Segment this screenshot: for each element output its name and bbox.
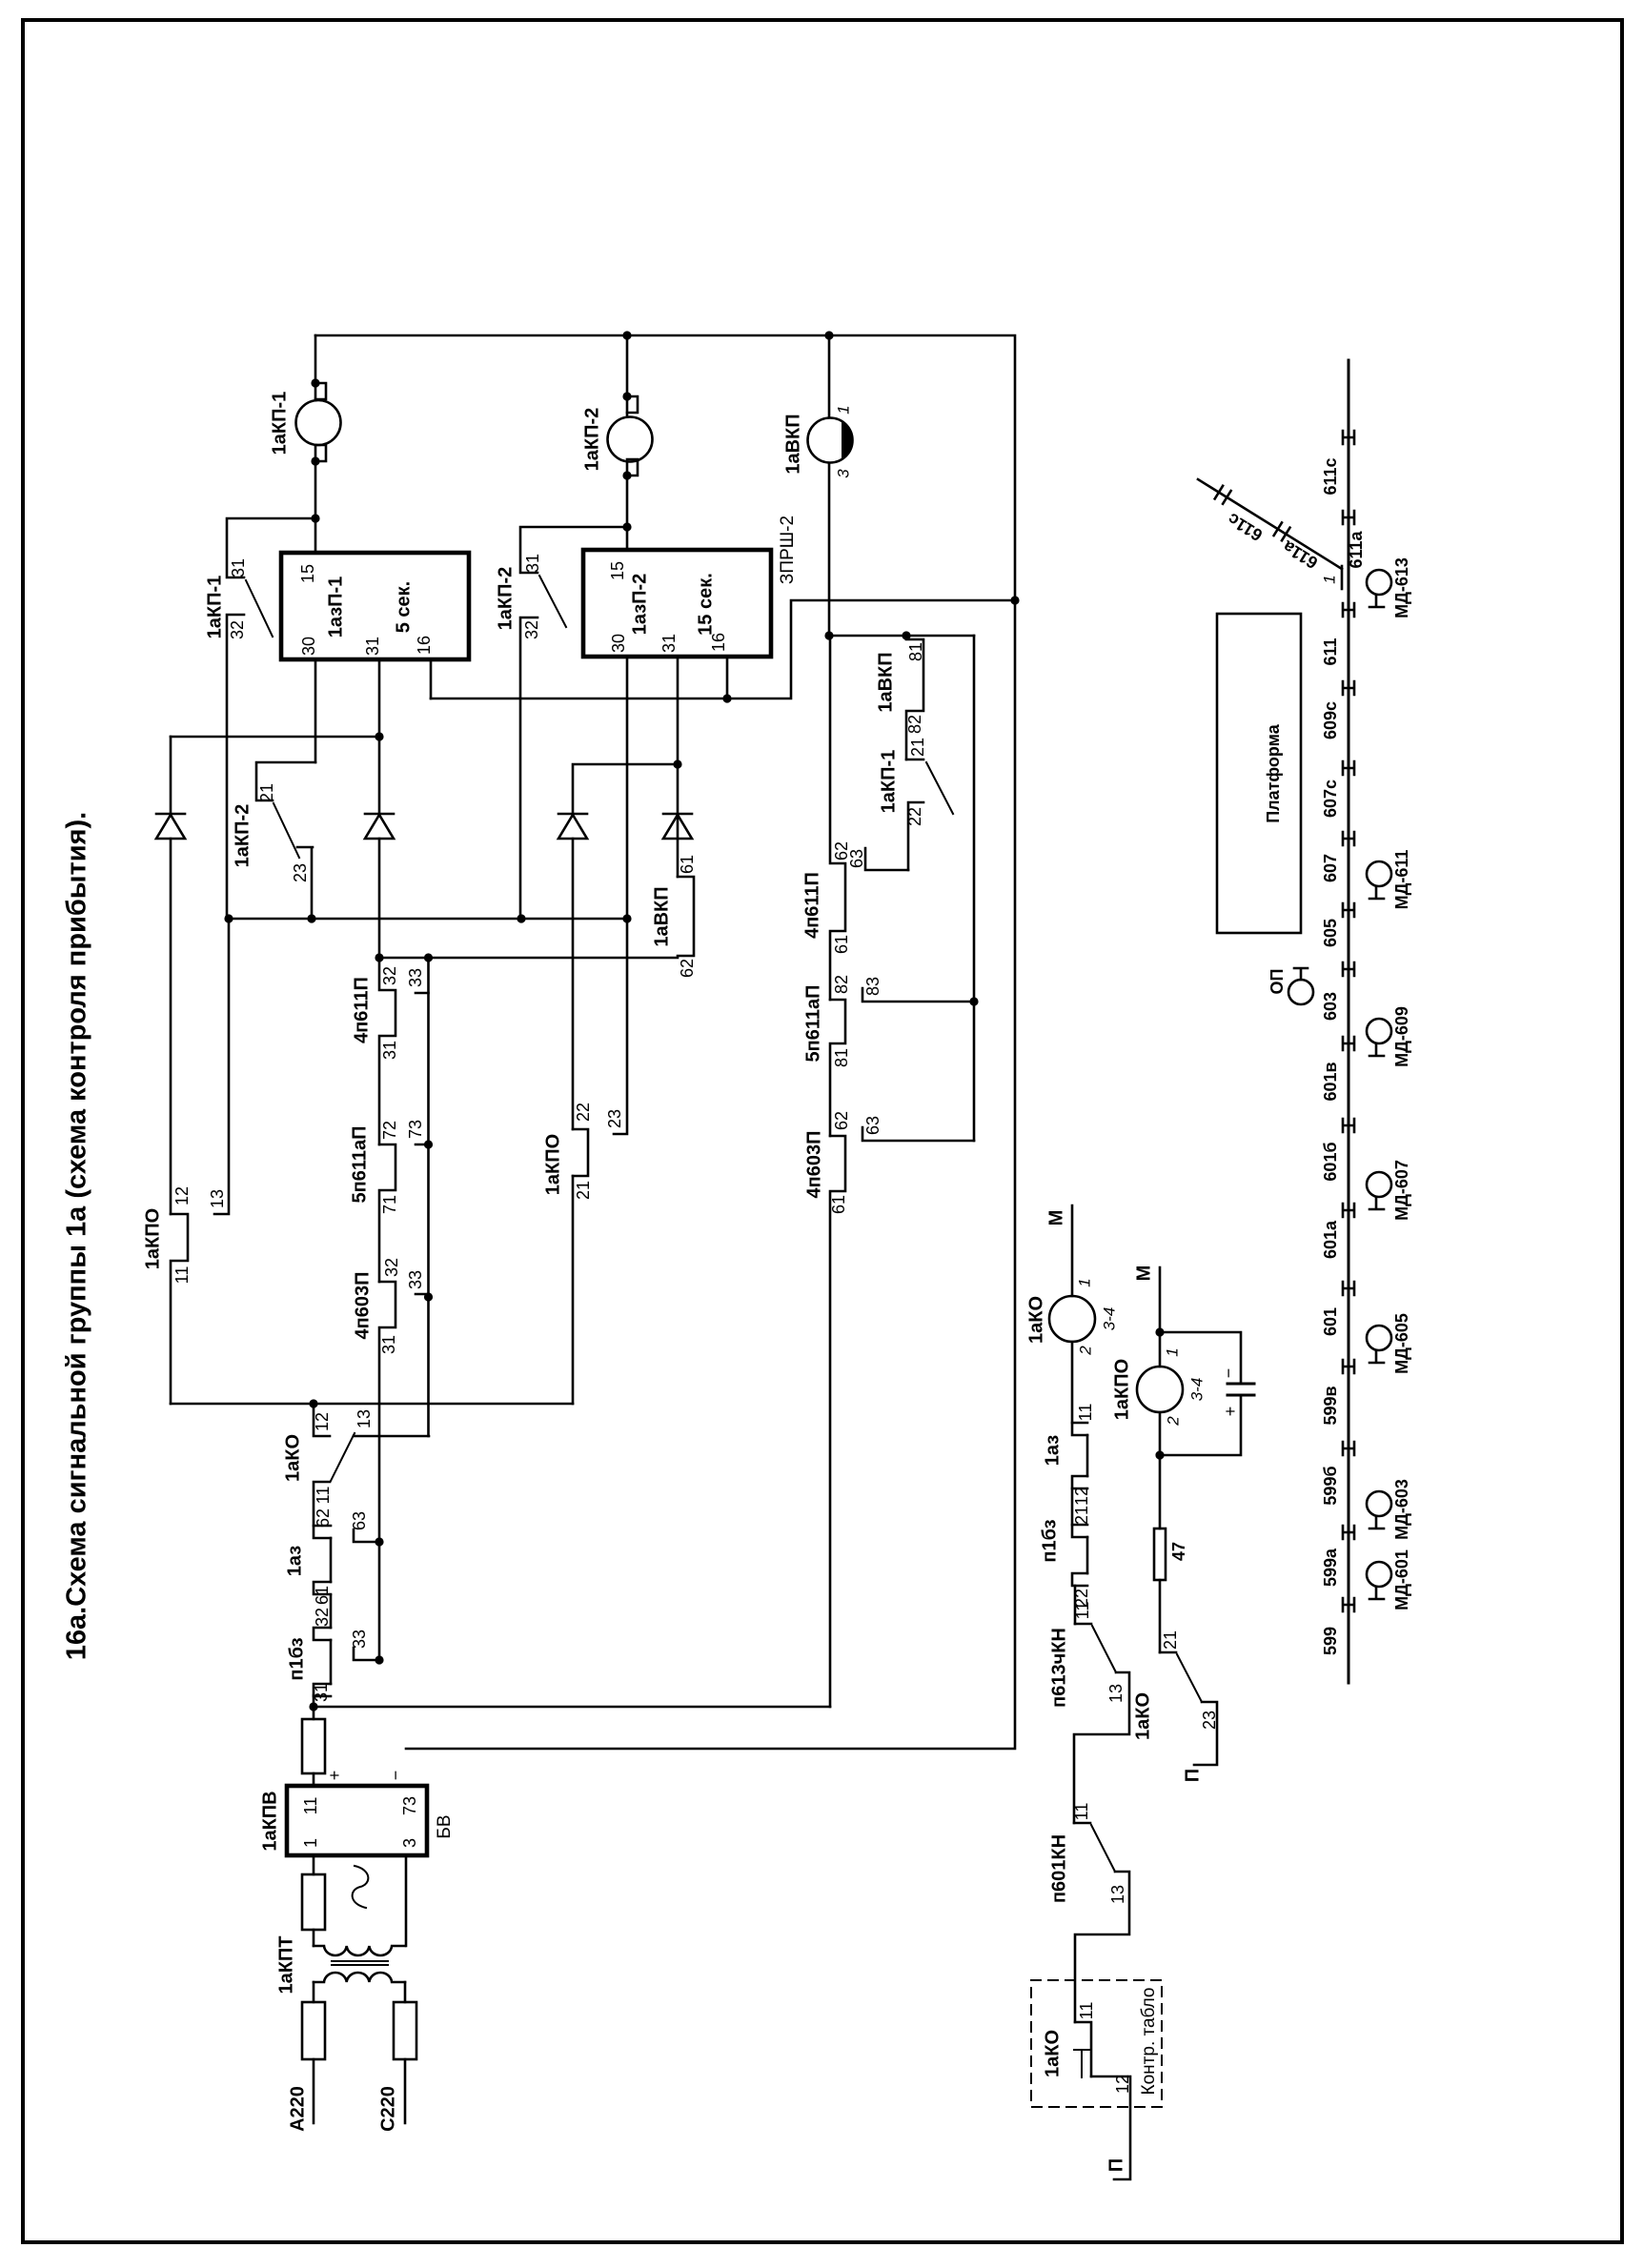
svg-text:31: 31 (312, 1683, 331, 1702)
svg-text:15: 15 (298, 564, 317, 583)
svg-text:1аКПТ: 1аКПТ (275, 1935, 296, 1994)
svg-text:32: 32 (382, 1258, 401, 1277)
svg-text:32: 32 (380, 966, 399, 985)
svg-text:МД-603: МД-603 (1392, 1479, 1411, 1540)
svg-text:61: 61 (313, 1586, 332, 1605)
svg-text:32: 32 (228, 620, 247, 639)
svg-text:62: 62 (678, 959, 697, 978)
svg-text:11: 11 (301, 1797, 320, 1815)
svg-text:82: 82 (905, 715, 924, 734)
svg-text:609с: 609с (1321, 701, 1340, 739)
svg-text:11: 11 (1072, 1803, 1091, 1821)
svg-text:607с: 607с (1321, 780, 1340, 818)
svg-text:п1бз: п1бз (1039, 1519, 1060, 1562)
svg-text:3-4: 3-4 (1187, 1378, 1206, 1402)
svg-text:2: 2 (1076, 1346, 1094, 1356)
svg-text:21: 21 (1161, 1630, 1180, 1650)
svg-text:3-4: 3-4 (1100, 1307, 1118, 1331)
svg-text:1аКО: 1аКО (1132, 1692, 1153, 1740)
svg-text:13: 13 (208, 1189, 227, 1208)
svg-text:ЗПРШ-2: ЗПРШ-2 (778, 516, 798, 584)
svg-text:32: 32 (313, 1608, 332, 1627)
svg-text:2: 2 (1164, 1416, 1182, 1427)
svg-text:611с: 611с (1321, 457, 1340, 495)
svg-text:11: 11 (314, 1487, 333, 1505)
svg-text:63: 63 (847, 849, 866, 868)
svg-text:611: 611 (1321, 638, 1340, 665)
svg-text:599а: 599а (1321, 1548, 1340, 1587)
svg-text:12: 12 (1113, 2075, 1132, 2094)
svg-text:4п603П: 4п603П (803, 1131, 824, 1199)
svg-text:607: 607 (1321, 854, 1340, 882)
svg-text:1: 1 (1163, 1347, 1181, 1356)
svg-text:30: 30 (299, 637, 318, 656)
svg-text:М: М (1133, 1266, 1154, 1282)
svg-text:1аКП-2: 1аКП-2 (581, 408, 602, 472)
svg-text:601а: 601а (1321, 1220, 1340, 1259)
svg-text:1аВКП: 1аВКП (875, 652, 896, 712)
svg-text:1аКО: 1аКО (1042, 2030, 1063, 2077)
svg-text:15 сек.: 15 сек. (695, 573, 716, 636)
svg-text:21: 21 (1072, 1506, 1091, 1525)
svg-text:32: 32 (522, 620, 541, 639)
svg-text:5п611аП: 5п611аП (802, 985, 823, 1063)
svg-text:МД-607: МД-607 (1392, 1160, 1411, 1221)
svg-text:599: 599 (1321, 1627, 1340, 1655)
svg-text:605: 605 (1321, 919, 1340, 947)
svg-text:73: 73 (400, 1796, 419, 1815)
svg-text:1аКП-1: 1аКП-1 (269, 392, 290, 456)
svg-text:23: 23 (291, 863, 310, 882)
svg-text:5п611аП: 5п611аП (349, 1126, 370, 1204)
svg-text:1аз: 1аз (1042, 1435, 1063, 1466)
svg-text:81: 81 (906, 642, 925, 661)
svg-text:А220: А220 (287, 2086, 308, 2132)
svg-text:33: 33 (406, 1270, 425, 1289)
svg-text:16: 16 (415, 636, 434, 655)
svg-text:611а: 611а (1347, 530, 1366, 568)
svg-text:33: 33 (350, 1630, 369, 1649)
svg-text:М: М (1045, 1210, 1066, 1226)
svg-text:−: − (1219, 1368, 1238, 1379)
svg-text:−: − (386, 1771, 405, 1781)
svg-text:п601КН: п601КН (1048, 1834, 1069, 1903)
svg-text:3: 3 (400, 1838, 419, 1848)
svg-text:12: 12 (1072, 1487, 1091, 1506)
svg-text:4п603П: 4п603П (352, 1272, 373, 1340)
svg-text:1: 1 (834, 405, 852, 414)
svg-text:1азП-2: 1азП-2 (629, 574, 650, 636)
svg-text:13: 13 (1108, 1885, 1127, 1904)
svg-text:1аКПО: 1аКПО (142, 1208, 163, 1269)
svg-text:3: 3 (834, 469, 852, 478)
svg-text:33: 33 (406, 968, 425, 987)
svg-text:1аКО: 1аКО (282, 1434, 303, 1482)
svg-text:1: 1 (1075, 1278, 1093, 1286)
svg-text:83: 83 (863, 977, 882, 996)
svg-text:С220: С220 (377, 2086, 398, 2132)
svg-text:МД-613: МД-613 (1392, 557, 1411, 618)
svg-text:ОП: ОП (1268, 969, 1287, 995)
svg-text:5 сек.: 5 сек. (393, 581, 414, 634)
svg-text:71: 71 (380, 1195, 399, 1214)
svg-text:1аКП-1: 1аКП-1 (204, 576, 225, 639)
svg-text:МД-601: МД-601 (1392, 1549, 1411, 1610)
svg-text:61: 61 (678, 855, 697, 874)
svg-text:23: 23 (1200, 1711, 1219, 1730)
svg-text:16а.Схема сигнальной группы 1а: 16а.Схема сигнальной группы 1а (схема ко… (62, 812, 92, 1660)
svg-text:599в: 599в (1321, 1386, 1340, 1425)
svg-text:+: + (325, 1771, 344, 1781)
svg-text:12: 12 (313, 1412, 332, 1431)
svg-text:1аКПО: 1аКПО (1111, 1359, 1132, 1420)
svg-text:31: 31 (229, 558, 248, 577)
svg-text:1аКПВ: 1аКПВ (259, 1791, 280, 1851)
svg-text:61: 61 (829, 1195, 848, 1214)
svg-text:4п611П: 4п611П (801, 872, 822, 939)
svg-text:15: 15 (608, 561, 627, 580)
svg-text:1азП-1: 1азП-1 (325, 577, 346, 638)
svg-text:1аВКП: 1аВКП (651, 886, 672, 946)
svg-text:11: 11 (1076, 1404, 1095, 1422)
svg-text:П: П (1105, 2158, 1126, 2172)
svg-text:п1бз: п1бз (286, 1637, 307, 1680)
svg-text:21: 21 (574, 1181, 593, 1200)
svg-text:31: 31 (380, 1041, 399, 1060)
svg-text:62: 62 (314, 1509, 333, 1528)
svg-text:П: П (1182, 1769, 1203, 1782)
svg-text:4п611П: 4п611П (351, 977, 372, 1043)
svg-text:601: 601 (1321, 1307, 1340, 1336)
svg-text:1аВКП: 1аВКП (782, 414, 803, 474)
svg-text:62: 62 (832, 1111, 851, 1130)
svg-text:22: 22 (574, 1103, 593, 1122)
svg-text:БВ: БВ (435, 1814, 455, 1838)
svg-text:31: 31 (523, 554, 542, 573)
svg-text:601б: 601б (1321, 1142, 1340, 1181)
svg-text:12: 12 (172, 1186, 192, 1205)
svg-text:23: 23 (605, 1109, 624, 1128)
svg-text:81: 81 (832, 1048, 851, 1067)
svg-text:1аКП-2: 1аКП-2 (495, 567, 516, 631)
svg-text:31: 31 (379, 1335, 398, 1354)
svg-text:МД-605: МД-605 (1392, 1313, 1411, 1374)
svg-text:+: + (1221, 1407, 1240, 1417)
svg-text:61: 61 (832, 935, 851, 954)
svg-text:31: 31 (363, 637, 382, 656)
svg-text:63: 63 (863, 1116, 882, 1135)
svg-text:1: 1 (1320, 575, 1338, 583)
svg-text:31: 31 (659, 634, 679, 653)
svg-text:Контр. табло: Контр. табло (1139, 1988, 1159, 2096)
svg-text:11: 11 (1073, 1602, 1092, 1620)
svg-text:1аКП-1: 1аКП-1 (878, 750, 899, 814)
svg-text:16: 16 (709, 633, 728, 652)
svg-text:1аз: 1аз (284, 1546, 305, 1576)
svg-text:13: 13 (1106, 1684, 1126, 1703)
svg-text:11: 11 (172, 1266, 192, 1285)
svg-text:22: 22 (905, 807, 924, 826)
svg-text:1аКП-2: 1аКП-2 (232, 804, 253, 868)
svg-text:47: 47 (1169, 1542, 1188, 1561)
svg-text:1аКПО: 1аКПО (542, 1134, 563, 1195)
svg-text:73: 73 (406, 1120, 425, 1139)
svg-text:п613чКН: п613чКН (1048, 1628, 1069, 1708)
svg-text:72: 72 (380, 1121, 399, 1140)
svg-text:21: 21 (908, 738, 927, 757)
svg-text:Платформа: Платформа (1264, 723, 1283, 823)
svg-text:1аКО: 1аКО (1025, 1296, 1046, 1344)
svg-text:63: 63 (350, 1511, 369, 1530)
svg-text:13: 13 (355, 1409, 374, 1428)
svg-text:21: 21 (257, 783, 276, 802)
svg-text:601в: 601в (1321, 1062, 1340, 1101)
svg-text:1: 1 (301, 1838, 320, 1848)
svg-text:МД-609: МД-609 (1392, 1006, 1411, 1067)
svg-text:599б: 599б (1321, 1466, 1340, 1505)
svg-text:82: 82 (832, 975, 851, 994)
svg-text:11: 11 (1077, 2002, 1096, 2020)
svg-text:МД-611: МД-611 (1392, 850, 1411, 910)
svg-text:603: 603 (1321, 992, 1340, 1021)
svg-text:30: 30 (609, 634, 628, 653)
